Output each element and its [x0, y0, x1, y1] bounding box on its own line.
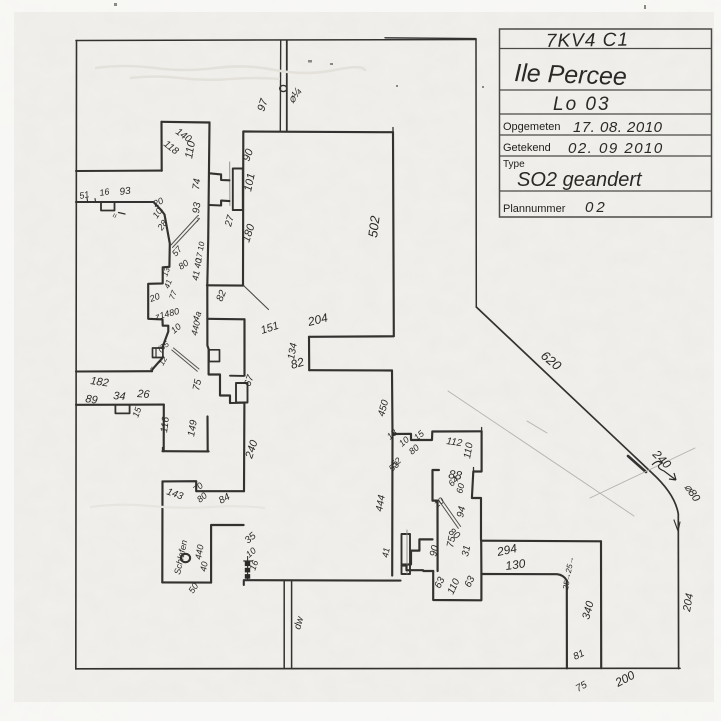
- svg-text:112: 112: [446, 436, 464, 449]
- svg-text:17. 08. 2010: 17. 08. 2010: [573, 119, 663, 136]
- svg-text:41: 41: [380, 547, 392, 559]
- svg-text:Opgemeten: Opgemeten: [503, 121, 560, 133]
- svg-text:Getekend: Getekend: [503, 142, 551, 154]
- svg-text:SO2 geandert: SO2 geandert: [517, 169, 643, 191]
- svg-text:02: 02: [585, 199, 608, 216]
- svg-text:502: 502: [365, 214, 383, 238]
- svg-text:116: 116: [159, 416, 172, 434]
- svg-text:Plannummer: Plannummer: [503, 203, 566, 215]
- svg-text:26: 26: [136, 388, 151, 401]
- svg-text:40: 40: [198, 561, 210, 573]
- svg-text:182: 182: [90, 375, 110, 389]
- svg-text:51: 51: [78, 189, 90, 201]
- svg-text:Ile Percee: Ile Percee: [514, 59, 627, 91]
- svg-text:Lo 03: Lo 03: [553, 94, 611, 115]
- svg-text:02. 09 2010: 02. 09 2010: [568, 140, 664, 157]
- svg-text:31: 31: [460, 544, 473, 557]
- svg-text:34: 34: [113, 390, 126, 403]
- svg-text:93: 93: [119, 185, 132, 198]
- svg-text:74: 74: [191, 178, 203, 191]
- svg-text:16: 16: [99, 186, 111, 198]
- svg-text:130: 130: [504, 556, 526, 573]
- svg-text:7KV4 C1: 7KV4 C1: [546, 30, 629, 52]
- svg-text:89: 89: [85, 393, 99, 407]
